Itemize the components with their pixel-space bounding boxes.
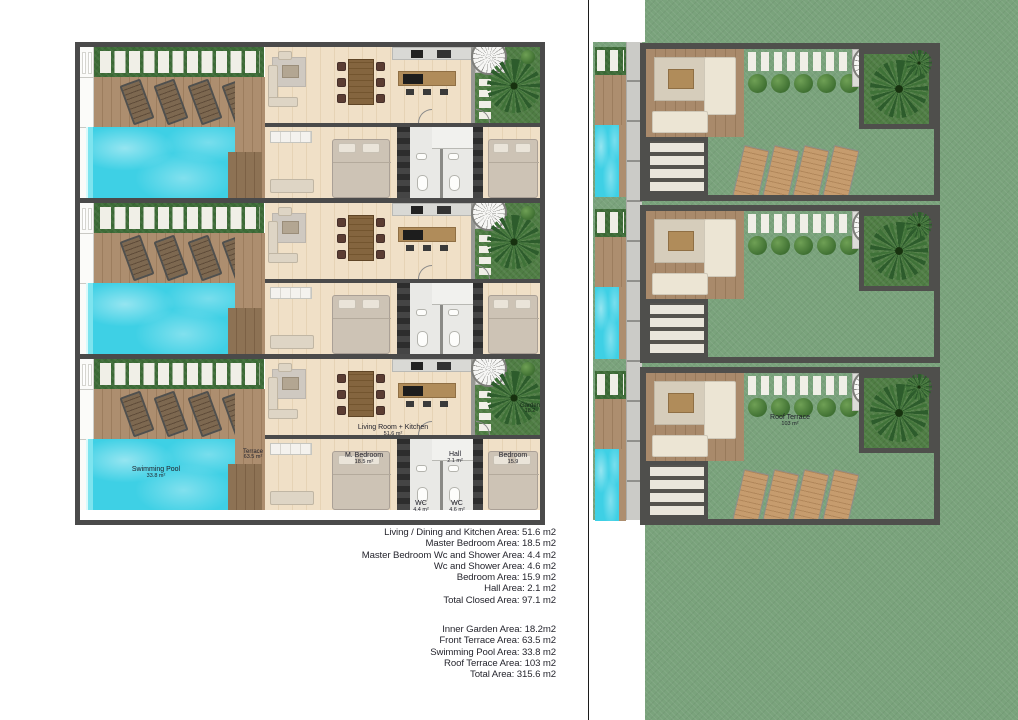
roof-unit-2 [640, 205, 940, 363]
front-garden-strip [94, 203, 264, 233]
sofa [268, 409, 298, 419]
chair-icon [337, 234, 346, 243]
sink-icon [416, 465, 427, 472]
strip-deck [619, 449, 626, 521]
front-garden-strip [94, 359, 264, 389]
plan-divider-line [588, 0, 589, 720]
entry-window [88, 364, 92, 386]
kitchen-counter [392, 47, 473, 60]
chair-icon [337, 374, 346, 383]
hall [432, 283, 473, 305]
roof-stair-pergola [646, 137, 708, 195]
stepping-stones [100, 207, 260, 229]
dining-table [348, 371, 374, 417]
wardrobe-dark [397, 127, 410, 198]
kitchen-counter [392, 359, 473, 372]
bush-icon [748, 236, 767, 255]
armchair [278, 363, 292, 372]
sink-icon [416, 153, 427, 160]
deck-step [228, 464, 262, 510]
ground-floor-plan [75, 42, 545, 525]
living-kitchen-label: Living Room + Kitchen 51.6 m² [358, 424, 428, 437]
pool-step [88, 439, 93, 510]
summary-line: Wc and Shower Area: 4.6 m2 [362, 561, 556, 572]
chair-icon [376, 374, 385, 383]
palm-court [859, 373, 934, 453]
wardrobe-dark [397, 439, 410, 510]
sink-icon [437, 206, 451, 214]
stepping-stones [100, 363, 260, 385]
palm-court [859, 49, 934, 129]
chair-icon [337, 94, 346, 103]
coffee-table [668, 231, 694, 251]
bush-icon [771, 74, 790, 93]
bush-icon [794, 236, 813, 255]
wc-label: WC 4.6 m² [449, 500, 465, 513]
master-wc-label: WC 4.4 m² [413, 500, 429, 513]
chair-icon [376, 78, 385, 87]
chair-icon [376, 234, 385, 243]
villa-unit-3 [80, 359, 540, 510]
sofa [268, 253, 298, 263]
sun-lounger-icon [153, 79, 188, 126]
sink-icon [448, 153, 459, 160]
entry-window [82, 208, 86, 230]
coffee-table [668, 69, 694, 89]
summary-line: Master Bedroom Area: 18.5 m2 [362, 538, 556, 549]
dining-table [348, 59, 374, 105]
cooktop-icon [403, 386, 423, 396]
bedroom-bed [488, 295, 538, 354]
chair-icon [337, 250, 346, 259]
sofa [268, 65, 278, 99]
roof-unit-1 [640, 43, 940, 201]
summary-line: Total Area: 315.6 m2 [430, 669, 556, 680]
roof-stepping-stones [748, 376, 860, 395]
master-bed [332, 295, 390, 354]
palm-tree-icon [487, 371, 540, 425]
sink-icon [416, 309, 427, 316]
summary-line: Swimming Pool Area: 33.8 m2 [430, 647, 556, 658]
outdoor-sofa [652, 435, 708, 457]
sink-icon [437, 50, 451, 58]
sun-lounger-icon [153, 235, 188, 282]
armchair [278, 51, 292, 60]
bush-icon [817, 398, 836, 417]
roof-unit-3 [640, 367, 940, 525]
ground-fragment-1 [595, 47, 626, 197]
bush-icon [794, 74, 813, 93]
master-wardrobe [270, 443, 312, 455]
swimming-pool-label: Swimming Pool 33.8 m² [132, 466, 180, 479]
villa-unit-1 [80, 47, 540, 198]
outdoor-sofa [704, 57, 736, 115]
plan-sheet: Roof Terrace 103 m² [0, 0, 1018, 720]
entry-window [88, 52, 92, 74]
bedroom-sofa [270, 335, 314, 349]
palm-tree-icon [487, 215, 540, 269]
coffee-table [282, 221, 299, 234]
chair-icon [337, 406, 346, 415]
front-garden-strip [94, 47, 264, 77]
sun-lounger-icon [187, 391, 222, 438]
ground-fragment-2 [595, 209, 626, 359]
summary-line: Roof Terrace Area: 103 m2 [430, 658, 556, 669]
summary-line: Hall Area: 2.1 m2 [362, 583, 556, 594]
stool-icon [423, 401, 431, 407]
sink-icon [437, 362, 451, 370]
cooktop-icon [403, 230, 423, 240]
summary-line: Front Terrace Area: 63.5 m2 [430, 635, 556, 646]
villa-unit-2 [80, 203, 540, 354]
bush-icon [748, 74, 767, 93]
bush-icon [748, 398, 767, 417]
sun-lounger-icon [187, 235, 222, 282]
summary-line: Living / Dining and Kitchen Area: 51.6 m… [362, 527, 556, 538]
strip-deck [595, 399, 626, 449]
outdoor-sofa [652, 111, 708, 133]
kitchen-island [398, 71, 456, 86]
kitchen-counter [392, 203, 473, 216]
wardrobe-dark [397, 283, 410, 354]
deck-step [228, 308, 262, 354]
sun-lounger-icon [153, 391, 188, 438]
coffee-table [282, 377, 299, 390]
bush-icon [521, 50, 535, 64]
roof-stair-pergola [646, 461, 708, 519]
entry-window [82, 364, 86, 386]
summary-line: Master Bedroom Wc and Shower Area: 4.4 m… [362, 550, 556, 561]
chair-icon [376, 218, 385, 227]
chair-icon [376, 390, 385, 399]
master-bed [332, 139, 390, 198]
strip-grass [595, 209, 626, 237]
sink-icon [448, 465, 459, 472]
stool-icon [423, 89, 431, 95]
hall [432, 127, 473, 149]
deck-step [228, 152, 262, 198]
pool-step [88, 127, 93, 198]
bath-divider-wall [440, 461, 443, 510]
master-wardrobe [270, 131, 312, 143]
sun-lounger-icon [119, 79, 154, 126]
toilet-icon [449, 175, 460, 191]
entry-window [88, 208, 92, 230]
roof-stepping-stones [748, 214, 860, 233]
bush-icon [521, 206, 535, 220]
strip-pool [595, 287, 619, 359]
chair-icon [337, 218, 346, 227]
palm-tree-icon [906, 374, 932, 400]
stool-icon [440, 401, 448, 407]
ground-fragment-3 [595, 371, 626, 521]
palm-court [859, 211, 934, 291]
chair-icon [376, 406, 385, 415]
roof-stepping-stones [748, 52, 860, 71]
stool-icon [406, 401, 414, 407]
master-wardrobe [270, 287, 312, 299]
bush-icon [771, 236, 790, 255]
summary-line: Total Closed Area: 97.1 m2 [362, 595, 556, 606]
strip-deck [619, 287, 626, 359]
chair-icon [337, 62, 346, 71]
dining-table [348, 215, 374, 261]
roof-terrace-label: Roof Terrace 103 m² [770, 414, 810, 427]
roof-deck-lounge [646, 211, 744, 299]
kitchen-island [398, 383, 456, 398]
strip-deck [595, 75, 626, 125]
toilet-icon [417, 175, 428, 191]
chair-icon [376, 94, 385, 103]
bath-divider-wall [440, 305, 443, 354]
bush-icon [521, 362, 535, 376]
roof-deck-lounge [646, 49, 744, 137]
outdoor-sofa [704, 381, 736, 439]
wardrobe-dark [473, 127, 483, 198]
entry-window [82, 52, 86, 74]
roof-deck-lounge [646, 373, 744, 461]
bedroom-label: Bedroom 15.9 [499, 452, 527, 465]
strip-deck [595, 237, 626, 287]
strip-pool [595, 125, 619, 197]
sun-lounger-icon [119, 391, 154, 438]
stepping-stones [100, 51, 260, 73]
sun-lounger-icon [119, 235, 154, 282]
bedroom-bed [488, 139, 538, 198]
summary-line: Inner Garden Area: 18.2m2 [430, 624, 556, 635]
armchair [278, 207, 292, 216]
sink-icon [448, 309, 459, 316]
closed-area-summary: Living / Dining and Kitchen Area: 51.6 m… [362, 527, 556, 606]
strip-grass [595, 47, 626, 75]
chair-icon [337, 390, 346, 399]
wardrobe-dark [473, 439, 483, 510]
sun-lounger-icon [187, 79, 222, 126]
stool-icon [406, 245, 414, 251]
stove-icon [411, 50, 423, 58]
stool-icon [440, 89, 448, 95]
stove-icon [411, 362, 423, 370]
pool-step [88, 283, 93, 354]
sofa [268, 377, 278, 411]
wardrobe-dark [473, 283, 483, 354]
palm-tree-icon [487, 59, 540, 113]
toilet-icon [417, 331, 428, 347]
cooktop-icon [403, 74, 423, 84]
roof-stair-pergola [646, 299, 708, 357]
stool-icon [423, 245, 431, 251]
stool-icon [440, 245, 448, 251]
strip-grass [595, 371, 626, 399]
coffee-table [668, 393, 694, 413]
palm-tree-icon [906, 212, 932, 238]
chair-icon [376, 62, 385, 71]
bedroom-sofa [270, 491, 314, 505]
coffee-table [282, 65, 299, 78]
bush-icon [817, 74, 836, 93]
sofa [268, 221, 278, 255]
garden-label: Garden 18.2 [520, 403, 540, 415]
bath-divider-wall [440, 149, 443, 198]
outdoor-sofa [704, 219, 736, 277]
master-bedroom-label: M. Bedroom 18.5 m² [345, 452, 383, 465]
bedroom-sofa [270, 179, 314, 193]
strip-pool [595, 449, 619, 521]
stool-icon [406, 89, 414, 95]
sofa [268, 97, 298, 107]
palm-tree-icon [906, 50, 932, 76]
open-area-summary: Inner Garden Area: 18.2m2 Front Terrace … [430, 624, 556, 680]
swimming-pool [86, 127, 235, 198]
chair-icon [337, 78, 346, 87]
strip-deck [619, 125, 626, 197]
outdoor-sofa [652, 273, 708, 295]
summary-line: Bedroom Area: 15.9 m2 [362, 572, 556, 583]
kitchen-island [398, 227, 456, 242]
stove-icon [411, 206, 423, 214]
toilet-icon [449, 331, 460, 347]
terrace-label: Terrace 63.5 m² [243, 449, 263, 461]
chair-icon [376, 250, 385, 259]
bush-icon [817, 236, 836, 255]
hall-label: Hall 2.1 m² [447, 451, 463, 464]
swimming-pool [86, 283, 235, 354]
